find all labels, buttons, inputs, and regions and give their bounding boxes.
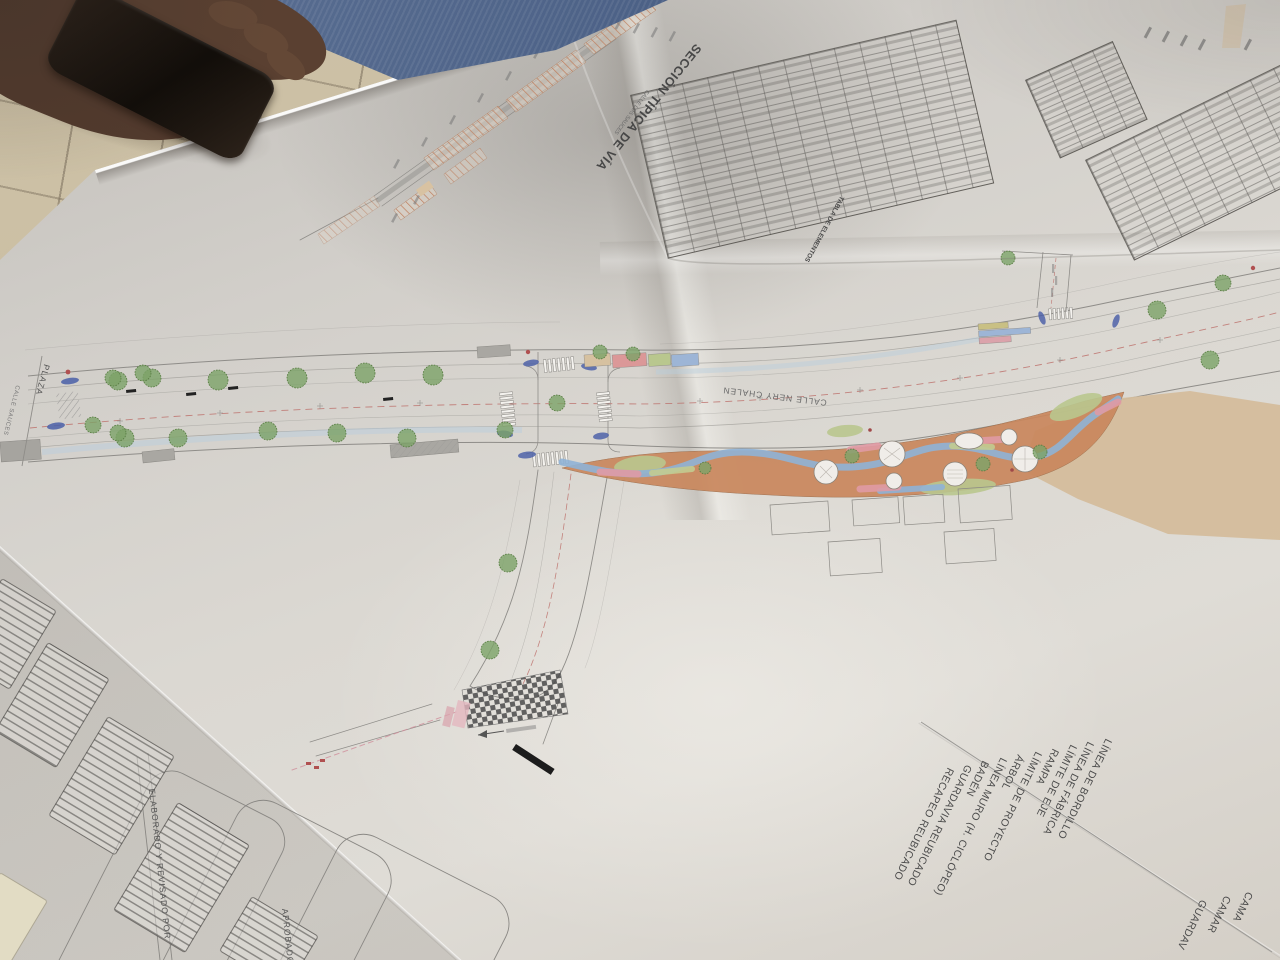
stub-annotations [306,725,536,769]
branch-pink-strips [442,700,470,728]
linear-park [562,387,1280,540]
building-plots [770,485,1012,576]
wall-symbol [512,744,554,775]
top-right-dimension-labels [1144,4,1252,51]
photo-scene: SECCIÓN TÍPICA DE VÍA CALLE LOS SAUCES C… [0,0,1280,960]
benches [126,386,393,401]
paper-crease [668,250,1280,264]
